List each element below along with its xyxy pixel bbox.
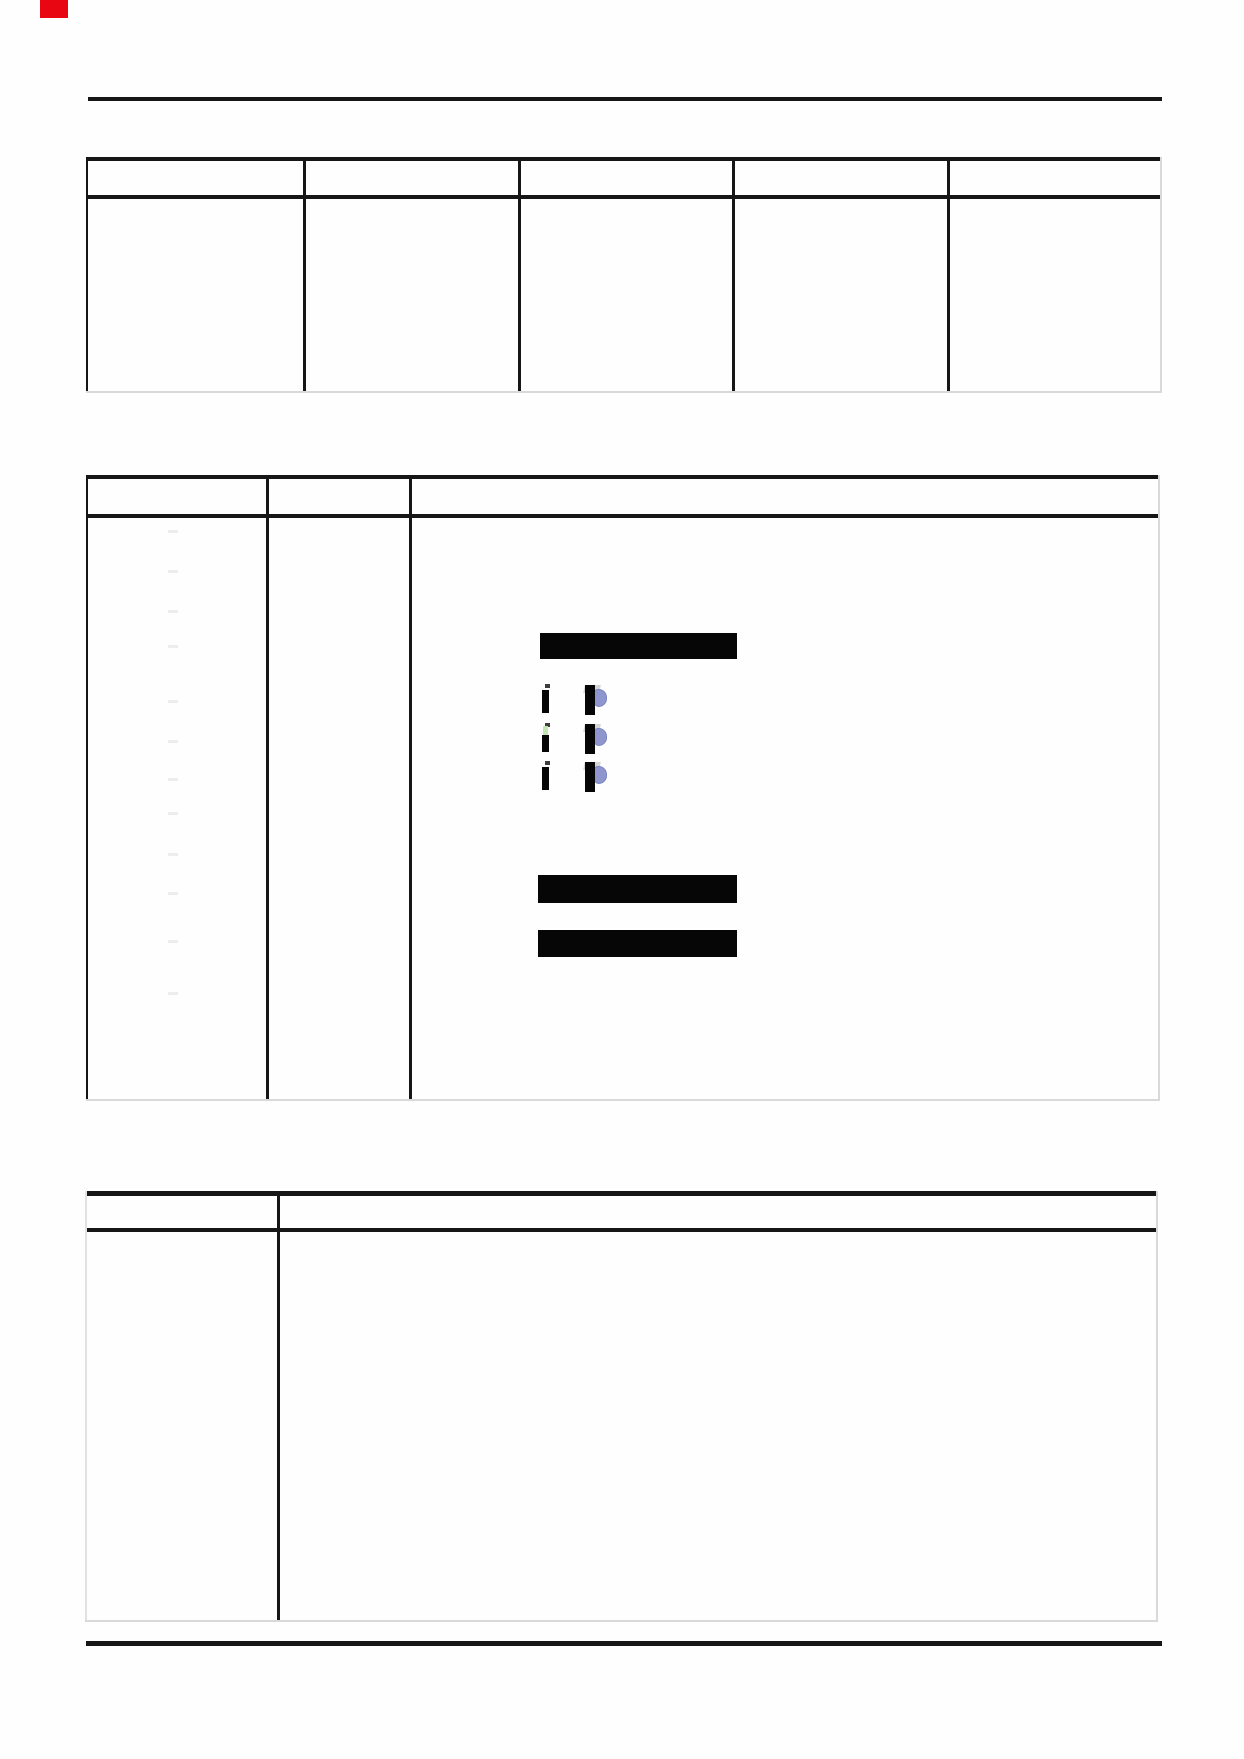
table-1-column-separator-4 [947,157,950,393]
table-1-header-separator [86,195,1162,199]
table-1-bottom-border [86,391,1162,393]
page-top-rule [88,97,1162,101]
redaction-bar-1 [540,633,737,659]
table-3-right-border [1156,1191,1158,1622]
redaction-bar-2 [538,875,737,903]
glyph-row-2-p-bowl-icon [594,728,607,746]
ghost-mark-6 [168,740,178,743]
table-2-bottom-border [86,1099,1160,1101]
table-2-header-separator [86,514,1160,518]
glyph-row-1-p-stem-icon [585,685,595,715]
table-2-column-separator-1 [266,475,269,1101]
table-3-header-separator [85,1228,1158,1232]
ghost-mark-11 [168,940,178,943]
glyph-row-1-tick-icon [545,684,550,688]
glyph-row-3-stem-icon [542,767,549,790]
redaction-bar-3 [538,930,737,957]
glyph-row-3-tick-icon [545,761,550,765]
glyph-row-1-stem-icon [542,690,549,713]
ghost-mark-9 [168,853,178,856]
table-1-column-separator-1 [303,157,306,393]
table-1-right-border [1160,157,1162,393]
table-3-left-border [85,1191,87,1622]
table-1-column-separator-3 [732,157,735,393]
table-2-column-separator-2 [409,475,412,1101]
table-2-top-border [86,475,1160,479]
ghost-mark-10 [168,892,178,895]
document-page [0,0,1244,1759]
table-2-left-border [86,475,88,1101]
ghost-mark-3 [168,610,178,613]
page-bottom-rule [86,1641,1162,1646]
glyph-row-2-stem-icon [542,735,549,752]
glyph-row-3-p-stem-icon [585,762,595,792]
table-3-bottom-border [85,1620,1158,1622]
glyph-row-2-p-stem-icon [585,724,595,754]
ghost-mark-8 [168,812,178,815]
table-2-right-border [1158,475,1160,1101]
glyph-row-3-p-bowl-icon [594,766,607,784]
ghost-mark-12 [168,992,178,995]
ghost-mark-2 [168,570,178,573]
table-1-top-border [86,157,1162,161]
table-3-top-border [85,1191,1158,1196]
ghost-mark-1 [168,530,178,533]
ghost-mark-5 [168,700,178,703]
ghost-mark-7 [168,778,178,781]
table-1-left-border [86,157,88,393]
glyph-row-1-p-bowl-icon [594,689,607,707]
table-3-column-separator-1 [277,1191,280,1622]
table-1-column-separator-2 [518,157,521,393]
ghost-mark-4 [168,645,178,648]
red-corner-mark [40,0,68,18]
